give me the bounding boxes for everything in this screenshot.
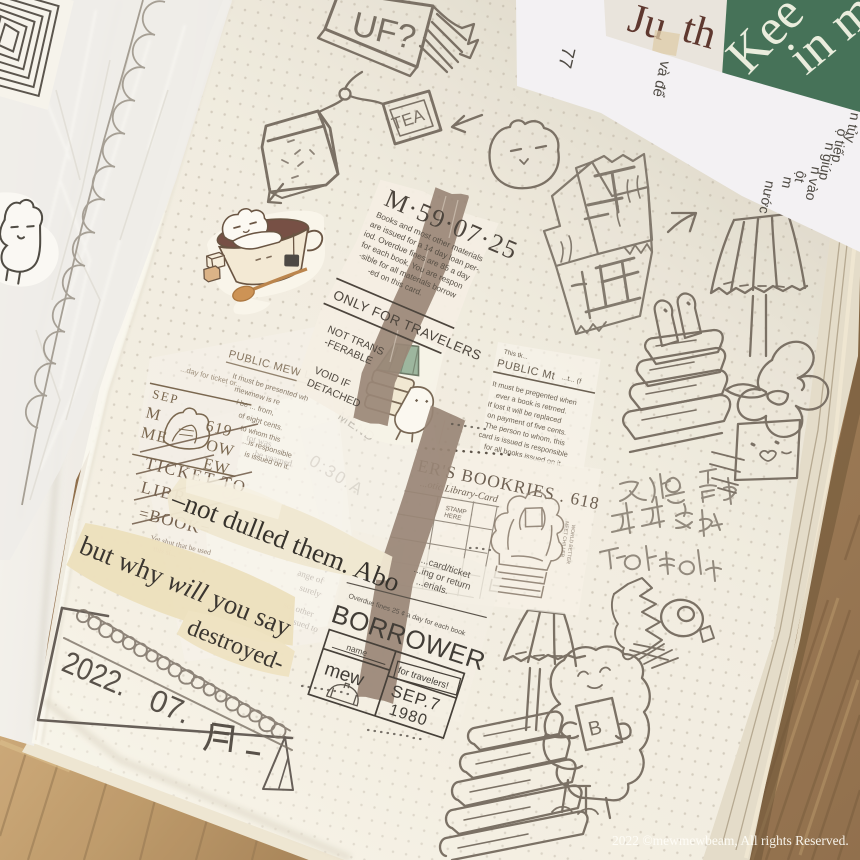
svg-text:2022 ©mewmewbeam, All rights R: 2022 ©mewmewbeam, All rights Reserved. xyxy=(612,833,849,848)
